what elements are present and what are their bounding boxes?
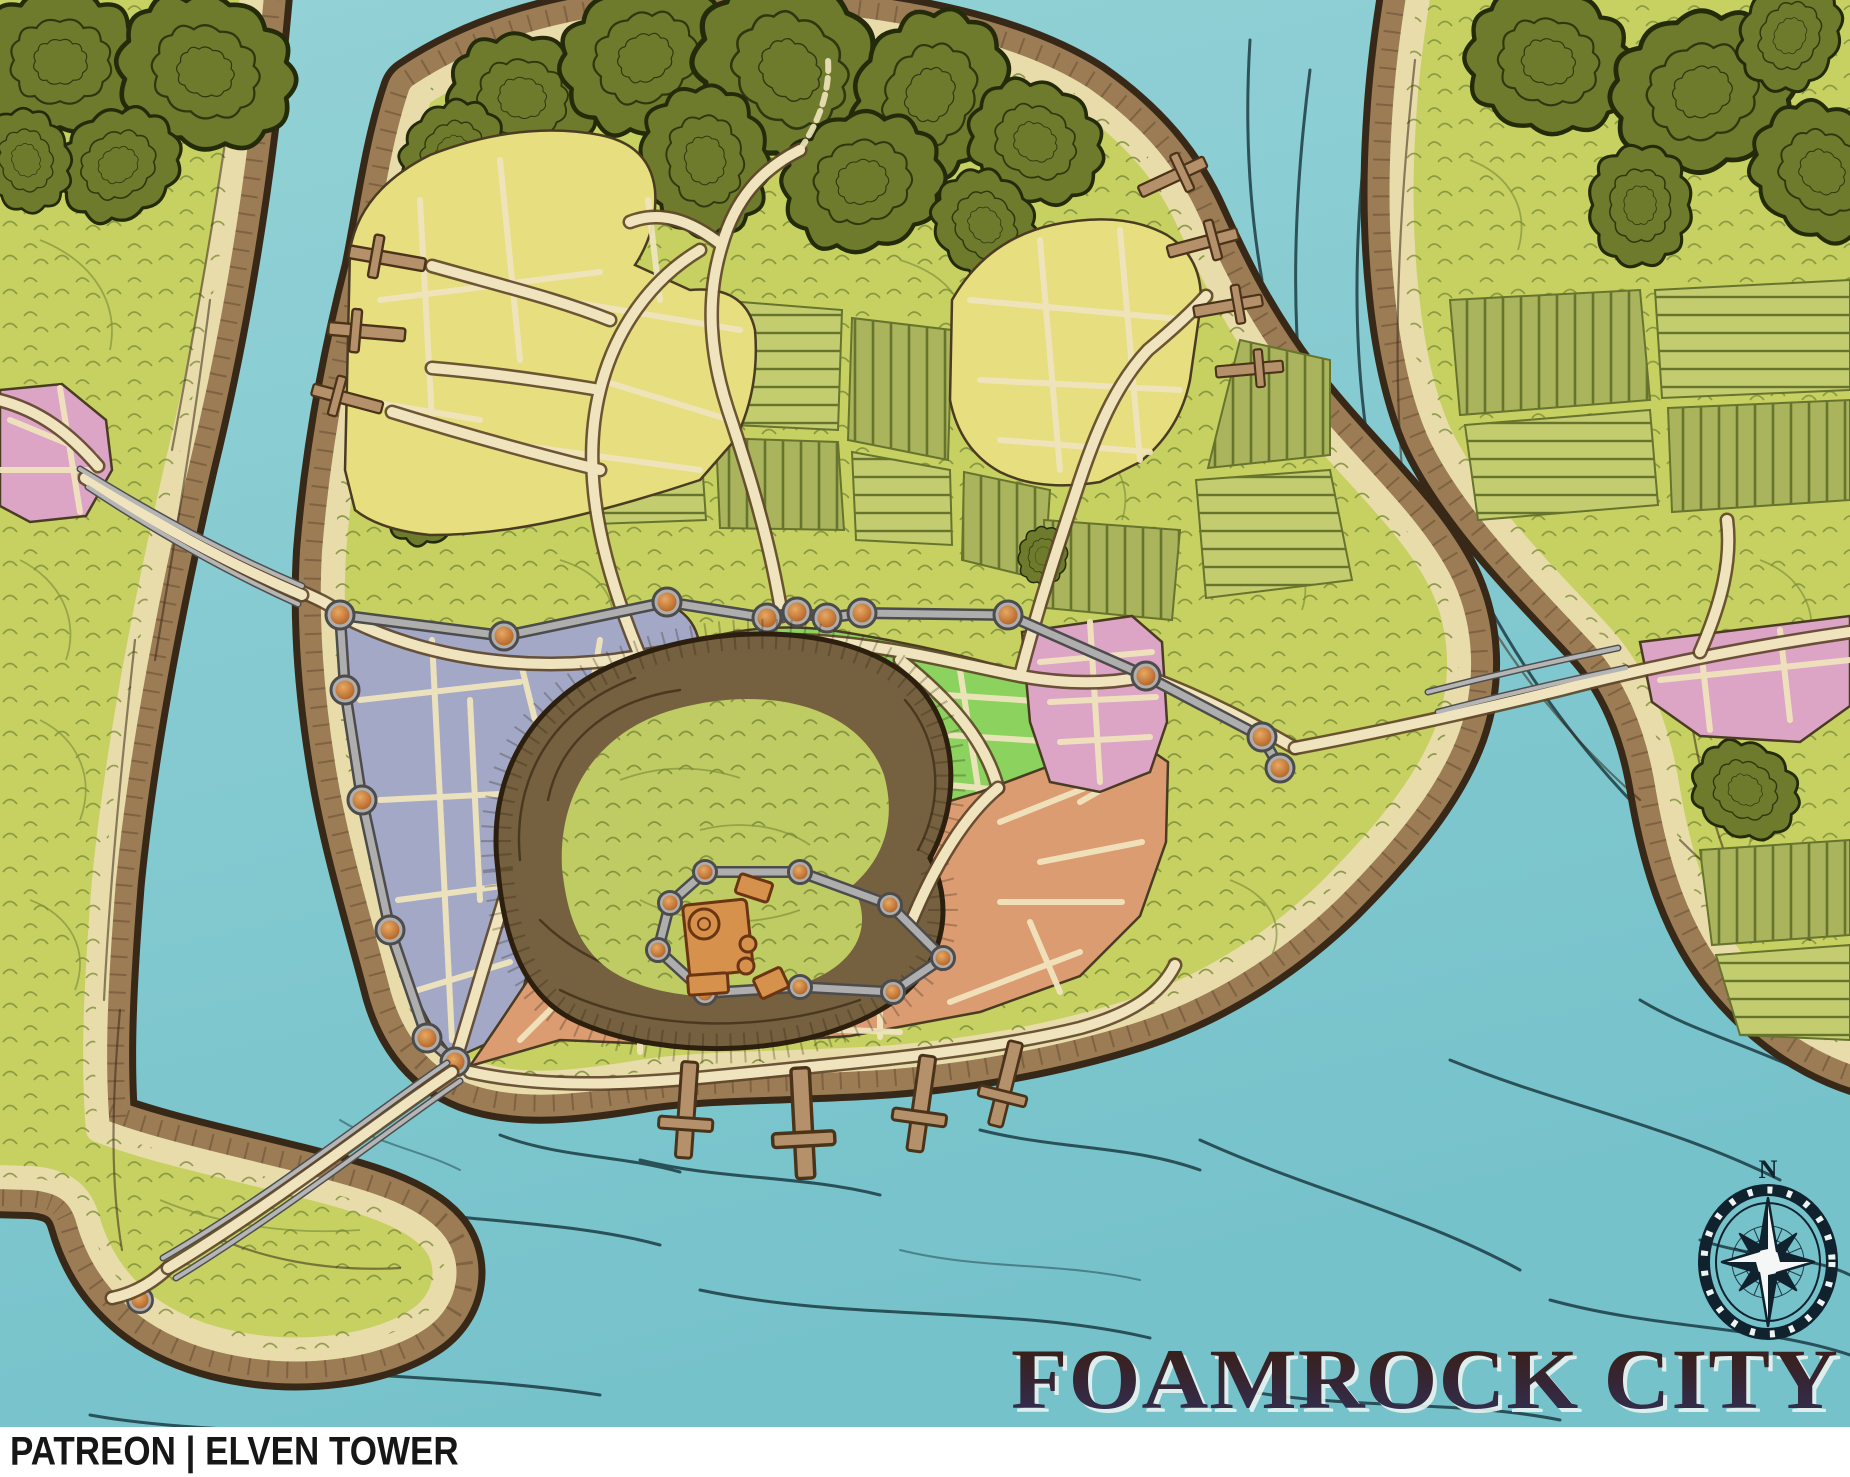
credit-text: PATREON | ELVEN TOWER: [0, 1429, 459, 1475]
tree: [1590, 145, 1692, 266]
map-title: FOAMROCK CITY: [1011, 1331, 1839, 1427]
fantasy-city-map: N FOAMROCK CITY FOAMROCK CITY: [0, 0, 1850, 1427]
compass-north-label: N: [1759, 1155, 1778, 1184]
footer-bar: PATREON | ELVEN TOWER: [0, 1427, 1850, 1477]
map-title-group: FOAMROCK CITY FOAMROCK CITY: [1011, 1331, 1843, 1427]
